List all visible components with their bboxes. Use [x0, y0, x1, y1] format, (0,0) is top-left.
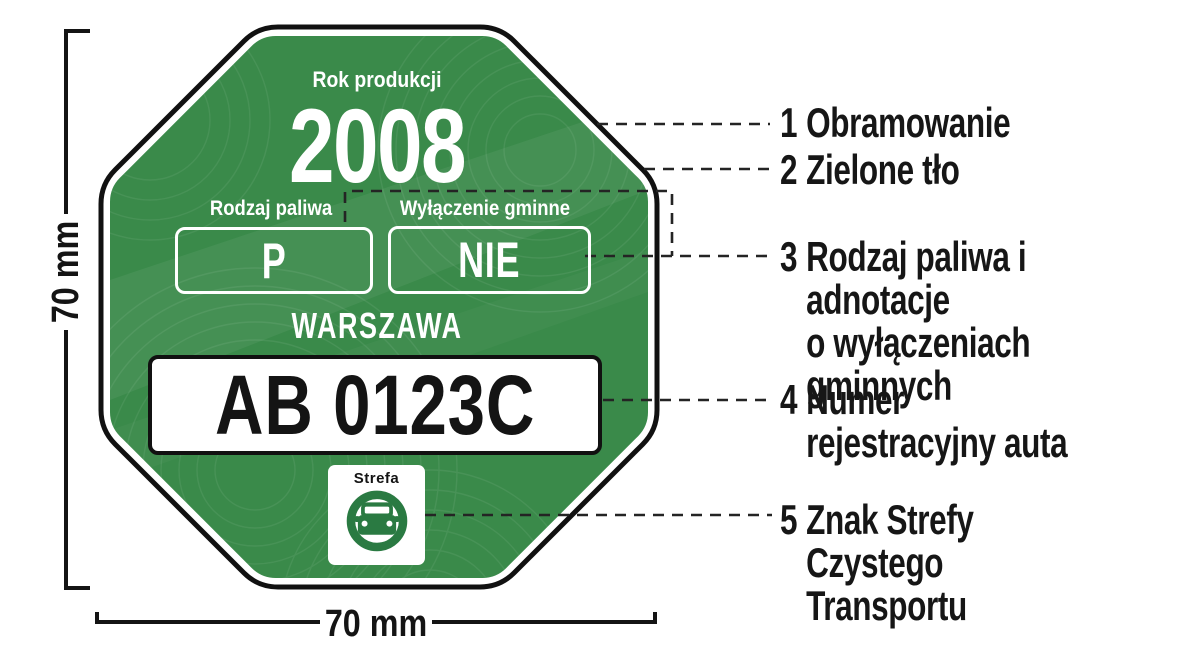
production-year-value: 2008 — [221, 94, 533, 199]
width-dimension-label: 70 mm — [325, 605, 427, 643]
sct-sticker-infographic: Rok produkcji 2008 Rodzaj paliwa Wyłącze… — [0, 0, 1202, 651]
annotation-label: Numer rejestracyjny auta — [806, 378, 1096, 464]
annotation-row-5: 5 Znak Strefy Czystego Transportu — [780, 498, 1097, 627]
height-dimension-label: 70 mm — [47, 221, 85, 323]
annotation-row-1: 1 Obramowanie — [780, 101, 1010, 144]
annotation-number: 2 — [780, 148, 797, 191]
annotation-label: Znak Strefy Czystego Transportu — [806, 498, 1096, 627]
car-front-icon — [343, 488, 411, 556]
municipal-exclusion-box: NIE — [388, 226, 591, 294]
annotation-number: 5 — [780, 498, 797, 627]
fuel-type-label: Rodzaj paliwa — [174, 198, 368, 219]
zone-badge-label: Strefa — [354, 470, 400, 487]
annotation-label: Zielone tło — [806, 148, 959, 191]
registration-number: AB 0123C — [215, 357, 535, 454]
municipal-exclusion-value: NIE — [458, 231, 520, 289]
fuel-type-box: P — [175, 227, 373, 294]
city-name: WARSZAWA — [265, 308, 490, 344]
annotation-row-2: 2 Zielone tło — [780, 148, 960, 191]
annotation-number: 1 — [780, 101, 797, 144]
registration-plate: AB 0123C — [148, 355, 602, 455]
annotation-number: 4 — [780, 378, 797, 464]
fuel-type-value: P — [262, 232, 287, 290]
municipal-exclusion-label: Wyłączenie gminne — [388, 198, 582, 219]
annotation-label: Obramowanie — [806, 101, 1010, 144]
clean-transport-zone-badge: Strefa — [328, 465, 425, 565]
annotation-row-4: 4 Numer rejestracyjny auta — [780, 378, 1097, 464]
